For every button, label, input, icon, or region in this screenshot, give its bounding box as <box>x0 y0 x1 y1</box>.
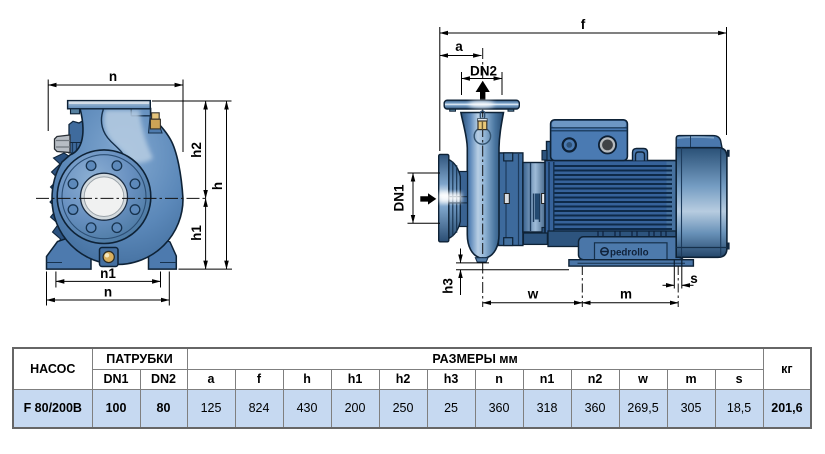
svg-text:n: n <box>109 69 117 84</box>
svg-text:h: h <box>210 182 225 190</box>
svg-text:m: m <box>620 287 632 302</box>
svg-text:h2: h2 <box>189 142 204 158</box>
svg-text:pedrollo: pedrollo <box>610 248 649 259</box>
svg-text:s: s <box>690 271 698 286</box>
svg-text:f: f <box>581 17 586 32</box>
svg-text:n: n <box>104 285 112 300</box>
svg-text:DN1: DN1 <box>392 184 407 211</box>
svg-text:n1: n1 <box>100 266 116 281</box>
svg-text:w: w <box>527 287 539 302</box>
svg-text:a: a <box>455 39 463 54</box>
svg-text:h1: h1 <box>189 225 204 241</box>
svg-text:h3: h3 <box>441 278 456 294</box>
svg-text:DN2: DN2 <box>470 64 497 79</box>
